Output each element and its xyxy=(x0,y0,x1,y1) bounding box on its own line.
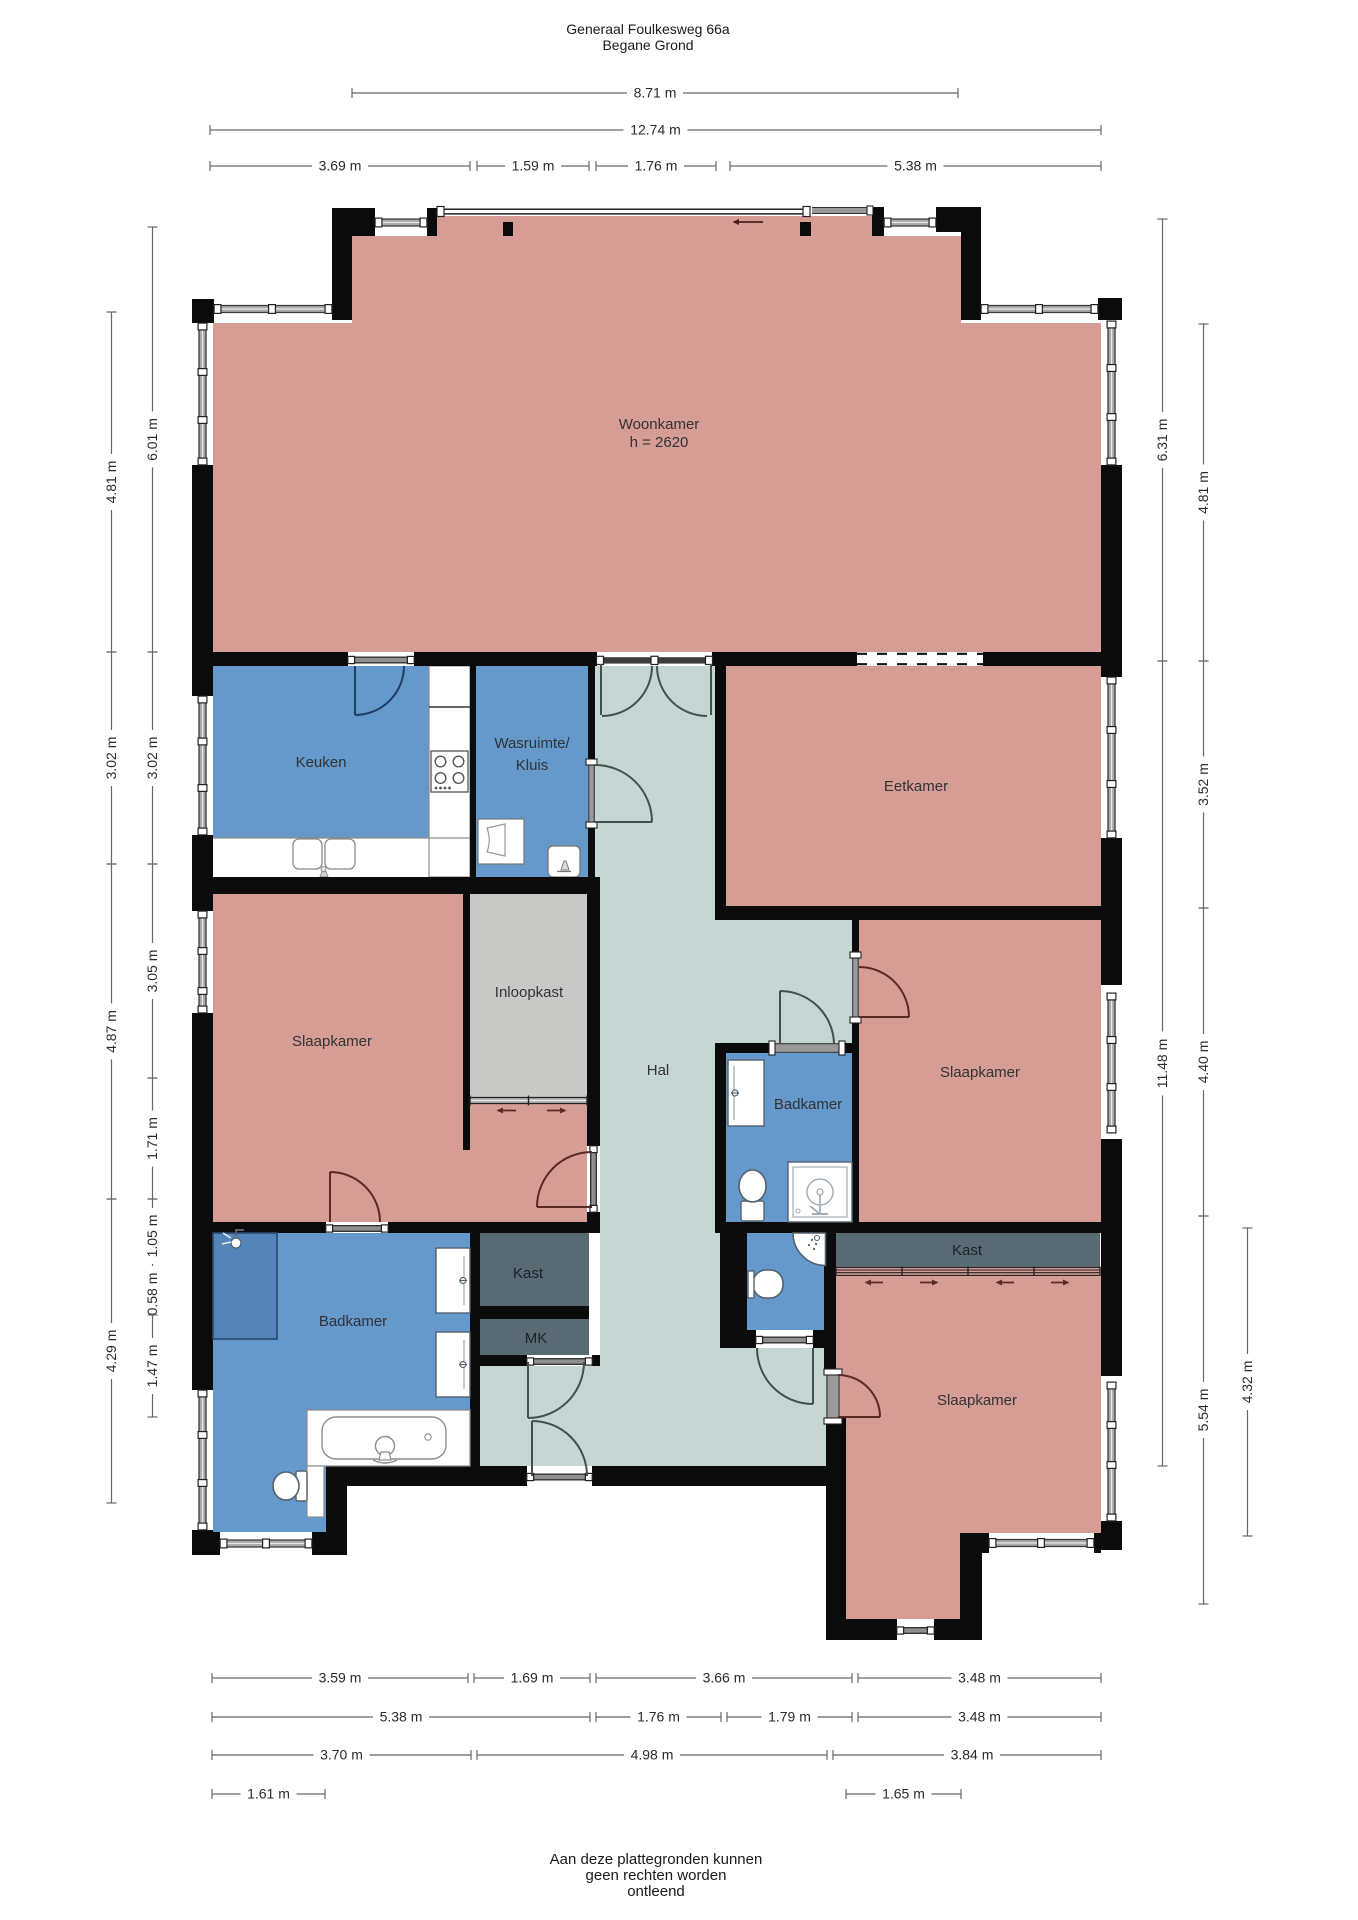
svg-text:Aan deze plattegronden kunnen: Aan deze plattegronden kunnen xyxy=(550,1851,763,1868)
svg-text:6.01 m: 6.01 m xyxy=(144,418,160,461)
svg-text:3.70 m: 3.70 m xyxy=(320,1747,363,1763)
svg-text:3.52 m: 3.52 m xyxy=(1195,763,1211,806)
svg-text:Badkamer: Badkamer xyxy=(319,1313,387,1330)
svg-text:1.59 m: 1.59 m xyxy=(512,158,555,174)
svg-text:12.74 m: 12.74 m xyxy=(630,122,681,138)
svg-text:3.84 m: 3.84 m xyxy=(951,1747,994,1763)
svg-text:3.05 m: 3.05 m xyxy=(144,950,160,993)
svg-text:4.87 m: 4.87 m xyxy=(103,1010,119,1053)
svg-text:MK: MK xyxy=(525,1330,548,1347)
svg-text:3.69 m: 3.69 m xyxy=(319,158,362,174)
svg-text:Slaapkamer: Slaapkamer xyxy=(937,1392,1017,1409)
svg-text:5.54 m: 5.54 m xyxy=(1195,1389,1211,1432)
svg-text:4.98 m: 4.98 m xyxy=(631,1747,674,1763)
svg-text:1.05 m: 1.05 m xyxy=(144,1215,160,1258)
svg-text:6.31 m: 6.31 m xyxy=(1154,419,1170,462)
svg-text:3.02 m: 3.02 m xyxy=(103,737,119,780)
svg-text:4.81 m: 4.81 m xyxy=(1195,471,1211,514)
svg-text:5.38 m: 5.38 m xyxy=(380,1709,423,1725)
svg-text:Kast: Kast xyxy=(952,1242,983,1259)
svg-text:Begane Grond: Begane Grond xyxy=(602,37,693,53)
svg-text:Slaapkamer: Slaapkamer xyxy=(940,1064,1020,1081)
svg-text:Eetkamer: Eetkamer xyxy=(884,778,948,795)
svg-text:4.29 m: 4.29 m xyxy=(103,1330,119,1373)
svg-text:1.69 m: 1.69 m xyxy=(511,1670,554,1686)
svg-text:3.48 m: 3.48 m xyxy=(958,1670,1001,1686)
svg-text:Hal: Hal xyxy=(647,1062,670,1079)
svg-text:1.76 m: 1.76 m xyxy=(635,158,678,174)
svg-text:Slaapkamer: Slaapkamer xyxy=(292,1033,372,1050)
svg-text:Kluis: Kluis xyxy=(516,757,549,774)
svg-text:5.38 m: 5.38 m xyxy=(894,158,937,174)
svg-text:1.47 m: 1.47 m xyxy=(144,1345,160,1388)
svg-text:Wasruimte/: Wasruimte/ xyxy=(494,735,570,752)
svg-text:1.71 m: 1.71 m xyxy=(144,1117,160,1160)
svg-text:4.81 m: 4.81 m xyxy=(103,461,119,504)
svg-text:3.02 m: 3.02 m xyxy=(144,737,160,780)
svg-text:4.40 m: 4.40 m xyxy=(1195,1041,1211,1084)
svg-text:ontleend: ontleend xyxy=(627,1883,685,1900)
svg-text:1.79 m: 1.79 m xyxy=(768,1709,811,1725)
svg-text:h = 2620: h = 2620 xyxy=(630,434,689,451)
svg-text:Woonkamer: Woonkamer xyxy=(619,416,700,433)
svg-text:4.32 m: 4.32 m xyxy=(1239,1361,1255,1404)
svg-text:1.76 m: 1.76 m xyxy=(637,1709,680,1725)
svg-text:3.59 m: 3.59 m xyxy=(319,1670,362,1686)
svg-text:3.66 m: 3.66 m xyxy=(703,1670,746,1686)
svg-text:0.58 m: 0.58 m xyxy=(144,1273,160,1316)
svg-text:Badkamer: Badkamer xyxy=(774,1096,842,1113)
svg-text:11.48 m: 11.48 m xyxy=(1154,1039,1170,1089)
svg-text:Inloopkast: Inloopkast xyxy=(495,984,564,1001)
svg-text:Keuken: Keuken xyxy=(296,754,347,771)
svg-text:1.61 m: 1.61 m xyxy=(247,1786,290,1802)
svg-text:geen rechten worden: geen rechten worden xyxy=(586,1867,727,1884)
svg-text:3.48 m: 3.48 m xyxy=(958,1709,1001,1725)
svg-text:8.71 m: 8.71 m xyxy=(634,85,677,101)
svg-text:Kast: Kast xyxy=(513,1265,544,1282)
svg-text:1.65 m: 1.65 m xyxy=(882,1786,925,1802)
svg-text:Generaal Foulkesweg 66a: Generaal Foulkesweg 66a xyxy=(566,21,730,37)
